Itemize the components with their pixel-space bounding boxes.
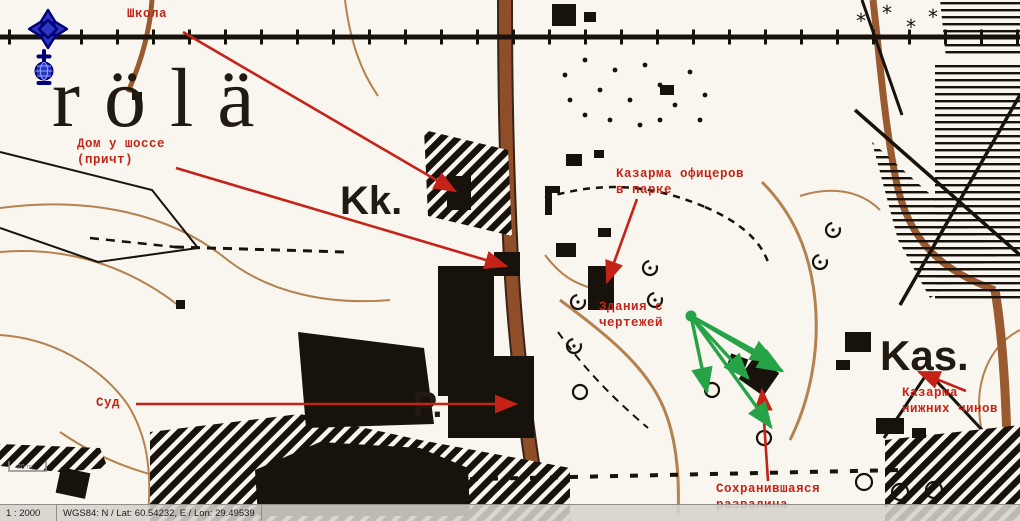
arrow-preserved-ruin <box>762 390 768 481</box>
map-label-kas: Kas. <box>880 332 969 379</box>
svg-text:*: * <box>882 1 892 25</box>
statusbar: 1 : 2000 WGS84: N / Lat: 60.54232, E / L… <box>0 504 1020 521</box>
annotation-court-label: Суд <box>96 395 120 411</box>
annotation-school-label: Школа <box>127 6 167 22</box>
annotation-lower-ranks-barracks-label: Казарма нижних чинов <box>902 385 998 418</box>
svg-text:*: * <box>906 15 916 39</box>
annotation-officers-barracks-label: Казарма офицеров в парке <box>616 166 744 199</box>
globe-icon[interactable] <box>36 63 53 80</box>
annotation-buildings-from-drawings-label: Здания с чертежей <box>599 299 663 332</box>
statusbar-scale: 1 : 2000 <box>0 505 57 521</box>
zoom-in-button[interactable] <box>39 51 50 62</box>
map-park-trees <box>563 58 708 128</box>
svg-text:*: * <box>928 5 938 29</box>
statusbar-coordinates: WGS84: N / Lat: 60.54232, E / Lon: 29.49… <box>57 505 262 521</box>
map-viewer-window: ** ** rölä Kk. Kas. P. 20 m Школа Дом у … <box>0 0 1020 521</box>
map-canvas[interactable]: ** ** rölä Kk. Kas. P. 20 m <box>0 0 1020 521</box>
map-label-kk: Kk. <box>340 179 402 223</box>
svg-text:*: * <box>856 9 866 33</box>
map-nav-controls <box>0 0 90 100</box>
arrow-officers-barracks <box>607 199 637 282</box>
map-scalebar-label: 20 m <box>17 464 33 471</box>
annotation-house-by-highway-label: Дом у шоссе (причт) <box>77 136 165 169</box>
